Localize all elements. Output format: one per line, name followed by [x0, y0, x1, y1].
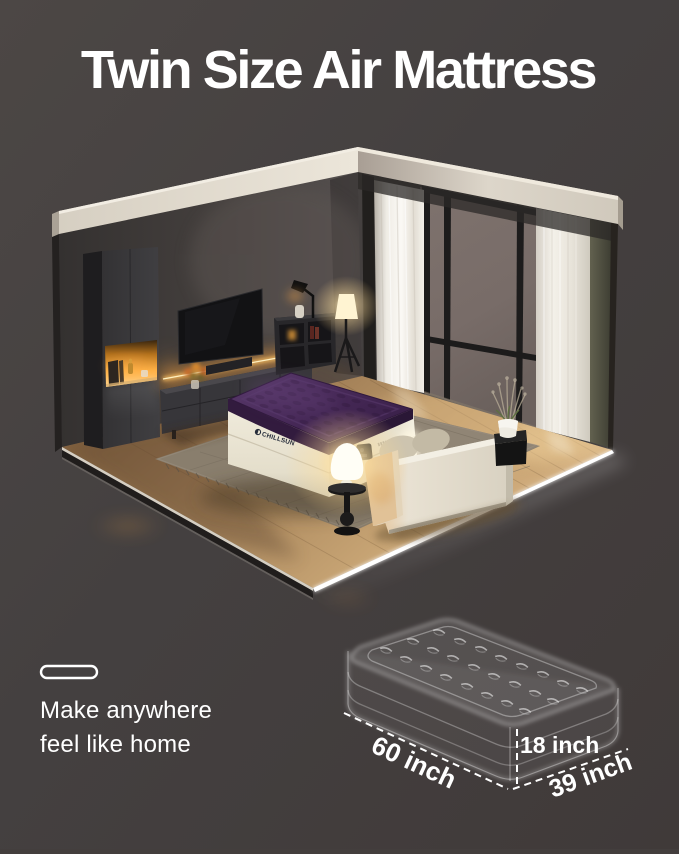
svg-text:18 inch: 18 inch: [520, 732, 599, 758]
svg-text:Twin Size Air Mattress: Twin Size Air Mattress: [81, 40, 596, 100]
svg-text:feel like home: feel like home: [40, 731, 191, 758]
svg-text:Make anywhere: Make anywhere: [40, 697, 212, 724]
